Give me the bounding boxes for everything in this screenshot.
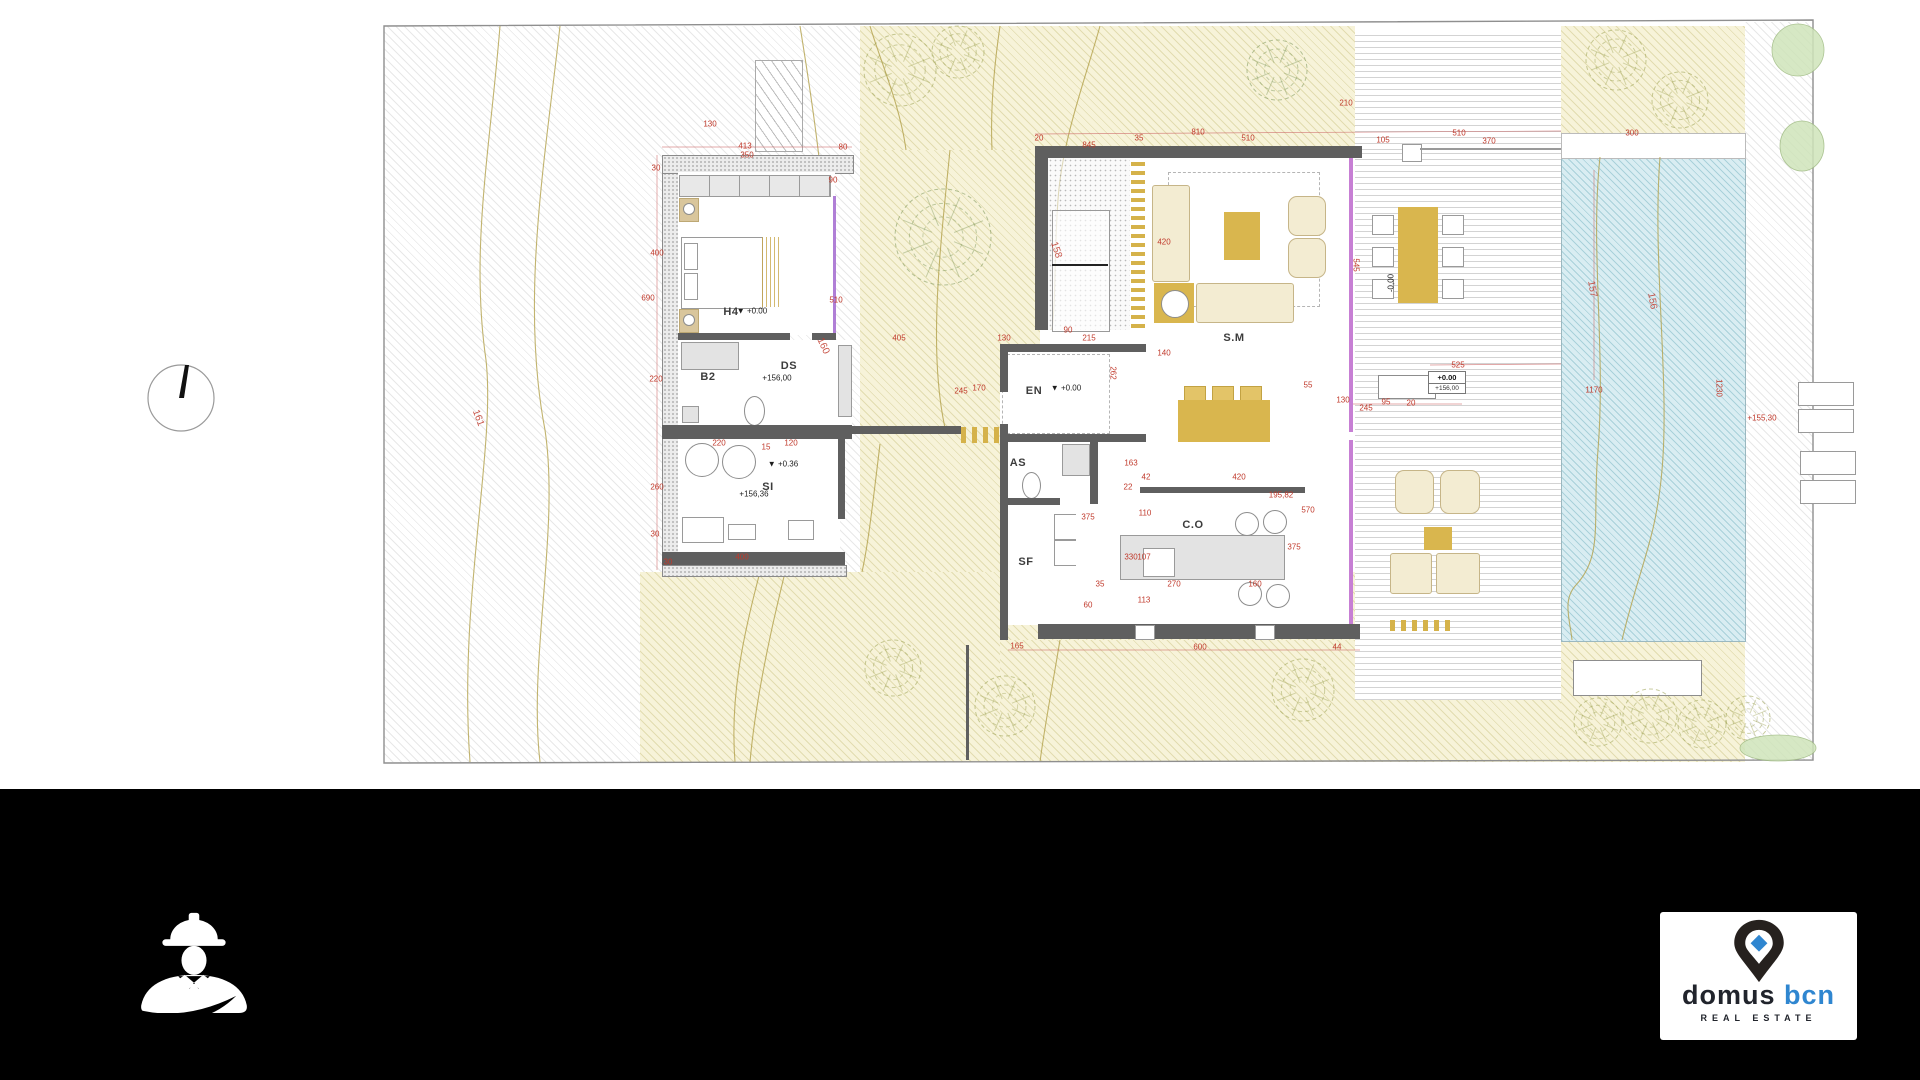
as-wc <box>1022 472 1041 499</box>
dimension-text: 130 <box>703 120 716 129</box>
dining-chair-2 <box>1212 386 1234 401</box>
dimension-text: 525 <box>1451 361 1464 370</box>
outdoor-chair-2 <box>1372 247 1394 267</box>
wall-as-south <box>1008 498 1060 505</box>
dimension-text: 1170 <box>1585 386 1602 395</box>
elevation-text: ▼ +0.36 <box>768 460 798 469</box>
wall-h4-b2 <box>678 333 790 340</box>
dimension-text: 20 <box>1407 399 1416 408</box>
stool-1 <box>1235 512 1259 536</box>
lounge-cube-table <box>1424 527 1452 550</box>
outdoor-chair-6 <box>1442 279 1464 299</box>
dimension-text: 105 <box>1376 136 1389 145</box>
elevation-text: +156,00 <box>762 374 791 383</box>
wall-si-east <box>838 439 845 519</box>
sm-armchair-2 <box>1288 238 1326 278</box>
elevation-text: ▼ +0.00 <box>1051 384 1081 393</box>
wall-as-east <box>1090 442 1098 504</box>
stair-screen-slats <box>1131 160 1145 328</box>
south-column-1 <box>1135 625 1155 640</box>
dimension-text: 95 <box>1382 398 1391 407</box>
sun-lounger-2 <box>1798 409 1854 433</box>
dimension-text: 300 <box>1625 129 1638 138</box>
dimension-text: 810 <box>1191 128 1204 137</box>
dimension-text: 210 <box>1339 99 1352 108</box>
dimension-text: 845 <box>1082 141 1095 150</box>
outdoor-dining-table <box>1398 207 1438 303</box>
as-shower <box>1062 444 1090 476</box>
b2-shower-drain <box>682 406 699 423</box>
dimension-text: 245 <box>954 387 967 396</box>
engineer-icon <box>128 901 260 1017</box>
dimension-text: 420 <box>1232 473 1245 482</box>
dimension-text: 15 <box>762 443 771 452</box>
si-table-2 <box>722 445 756 479</box>
sm-east-glazing <box>1349 158 1353 432</box>
brand-tagline: REAL ESTATE <box>1700 1013 1816 1023</box>
site-wall-south <box>966 645 969 760</box>
sm-armchair-1 <box>1288 196 1326 236</box>
b2-vanity <box>681 342 739 370</box>
pergola-beam <box>1420 148 1561 150</box>
lounge-sofa-1 <box>1390 553 1432 594</box>
dimension-text: 510 <box>1452 129 1465 138</box>
wall-main-west-upper <box>1035 158 1048 330</box>
co-east-glazing <box>1349 440 1353 630</box>
room-label: EN <box>1026 385 1042 397</box>
h4-pillow-2 <box>684 273 698 300</box>
wall-en-west-2 <box>1000 424 1008 440</box>
brand-wordmark: domus bcn <box>1682 982 1835 1009</box>
dimension-text: 35 <box>1135 134 1144 143</box>
outdoor-chair-5 <box>1442 247 1464 267</box>
lounge-sofa-2 <box>1436 553 1480 594</box>
porch-column <box>1402 144 1422 162</box>
dimension-text: 107 <box>1137 553 1150 562</box>
dimension-text: 170 <box>972 384 985 393</box>
si-table-1 <box>685 443 719 477</box>
ds-cabinet <box>838 345 852 417</box>
sheet-canvas: +0.00 +156,00 H4B2DSSIENASSFS.MC.O ▼ +0.… <box>0 0 1920 1080</box>
dimension-text: 113 <box>1138 596 1151 605</box>
dimension-text: 245 <box>1359 404 1372 413</box>
lounge-chair-1 <box>1395 470 1434 514</box>
si-bench-3 <box>788 520 814 540</box>
stair-mid-line <box>1052 264 1108 266</box>
dimension-text: 545 <box>1352 258 1361 271</box>
room-label: SF <box>1018 556 1033 568</box>
stool-4 <box>1266 584 1290 608</box>
dimension-text: 413 <box>738 142 751 151</box>
dimension-text: 375 <box>1287 543 1300 552</box>
dimension-text: 400 <box>650 249 663 258</box>
h4-pillow-1 <box>684 243 698 270</box>
dimension-text: 220 <box>649 375 662 384</box>
dimension-text: 35 <box>1096 580 1105 589</box>
en-canopy-dashed <box>1002 354 1110 434</box>
dimension-text: 262 <box>1109 366 1118 379</box>
dimension-text: 20 <box>1035 134 1044 143</box>
dimension-text: 370 <box>1482 137 1495 146</box>
dimension-text: 220 <box>712 439 725 448</box>
h4-lamp-1 <box>683 203 695 215</box>
sm-side-table-round <box>1161 290 1189 318</box>
level-annotation-box: +0.00 +156,00 <box>1428 371 1466 394</box>
h4-lamp-2 <box>683 314 695 326</box>
room-label: C.O <box>1182 519 1203 531</box>
dimension-text: 80 <box>839 143 848 152</box>
dimension-text: 420 <box>1157 238 1170 247</box>
dimension-text: 130 <box>1336 396 1349 405</box>
dimension-text: 130 <box>997 334 1010 343</box>
sm-sofa-vertical <box>1152 185 1190 282</box>
south-column-2 <box>1255 625 1275 640</box>
room-label: DS <box>781 360 797 372</box>
dimension-text: +155,30 <box>1747 414 1776 423</box>
h4-east-glazing <box>833 196 836 340</box>
dimension-text: 375 <box>1081 513 1094 522</box>
dimension-text: 30 <box>664 558 673 567</box>
dimension-text: 260 <box>650 483 663 492</box>
map-pin-icon <box>1731 918 1787 984</box>
dimension-text: 690 <box>641 294 654 303</box>
dimension-text: 90 <box>1064 326 1073 335</box>
dimension-text: 400 <box>735 553 748 562</box>
dimension-text: 350 <box>740 151 753 160</box>
dimension-text: 110 <box>1139 509 1152 518</box>
dimension-text: 60 <box>1084 601 1093 610</box>
dimension-text: 120 <box>784 439 797 448</box>
sm-sofa-horizontal <box>1196 283 1294 323</box>
dimension-text: 510 <box>1241 134 1254 143</box>
dining-table-indoor <box>1178 400 1270 442</box>
level-relative: +0.00 <box>1429 372 1465 384</box>
dimension-text: 90 <box>829 176 838 185</box>
dimension-text: 160 <box>1248 580 1261 589</box>
wall-en-west-1 <box>1000 344 1008 392</box>
dimension-text: 163 <box>1124 459 1137 468</box>
wall-as-north <box>1008 434 1146 442</box>
footer-band: domus bcn REAL ESTATE <box>0 789 1920 1080</box>
dimension-text: 30 <box>651 530 660 539</box>
floor-plan-area: +0.00 +156,00 H4B2DSSIENASSFS.MC.O ▼ +0.… <box>0 0 1920 789</box>
h4-bed-runner <box>762 237 780 307</box>
elevation-text: +156,36 <box>739 490 768 499</box>
dimension-text: 215 <box>1082 334 1095 343</box>
dimension-text: 140 <box>1157 349 1170 358</box>
sun-lounger-4 <box>1800 480 1856 504</box>
stair-treads <box>1052 210 1110 332</box>
dimension-text: 405 <box>892 334 905 343</box>
dining-chair-3 <box>1240 386 1262 401</box>
dimension-text: 1230 <box>1715 379 1724 397</box>
dimension-text: 55 <box>1304 381 1313 390</box>
b2-wc <box>744 396 765 426</box>
outdoor-chair-4 <box>1442 215 1464 235</box>
sun-lounger-3 <box>1800 451 1856 475</box>
outdoor-chair-1 <box>1372 215 1394 235</box>
dimension-text: 330 <box>1124 553 1137 562</box>
si-bench-2 <box>728 524 756 540</box>
link-wall <box>845 426 961 434</box>
level-absolute: +156,00 <box>1429 384 1465 393</box>
dimension-text: 22 <box>1124 483 1133 492</box>
dimension-text: 570 <box>1301 506 1314 515</box>
wall-corridor-south <box>662 425 852 439</box>
sm-coffee-table <box>1224 212 1260 260</box>
si-bench-1 <box>682 517 724 543</box>
sun-lounger-1 <box>1798 382 1854 406</box>
wall-si-south <box>662 552 845 565</box>
stool-2 <box>1263 510 1287 534</box>
elevation-text: ▼ +0.00 <box>737 307 767 316</box>
dimension-text: 195,82 <box>1269 491 1293 500</box>
dimension-text: 510 <box>829 296 842 305</box>
dimension-text: 600 <box>1193 643 1206 652</box>
room-label: S.M <box>1223 332 1244 344</box>
wall-main-south <box>1038 624 1360 639</box>
north-compass <box>144 360 220 436</box>
dimension-text: 165 <box>1010 642 1023 651</box>
north-compass-icon <box>144 360 220 436</box>
wall-en-north <box>1000 344 1146 352</box>
wall-sf-west <box>1000 440 1008 640</box>
lounge-chair-2 <box>1440 470 1480 514</box>
dimension-text: 44 <box>1333 643 1342 652</box>
elevation-text: -0,00 <box>1387 274 1396 292</box>
room-label: AS <box>1010 457 1026 469</box>
h4-wardrobe <box>679 175 831 197</box>
wall-si-south-stone <box>662 565 847 577</box>
brand-bcn: bcn <box>1784 980 1835 1010</box>
brand-domus: domus <box>1682 980 1776 1010</box>
dimension-text: 270 <box>1167 580 1180 589</box>
dining-chair-1 <box>1184 386 1206 401</box>
dimension-text: 42 <box>1142 473 1151 482</box>
domus-bcn-logo-card: domus bcn REAL ESTATE <box>1660 912 1857 1040</box>
room-label: B2 <box>700 371 715 383</box>
room-co-floor2 <box>1076 505 1098 630</box>
dimension-text: 30 <box>652 164 661 173</box>
